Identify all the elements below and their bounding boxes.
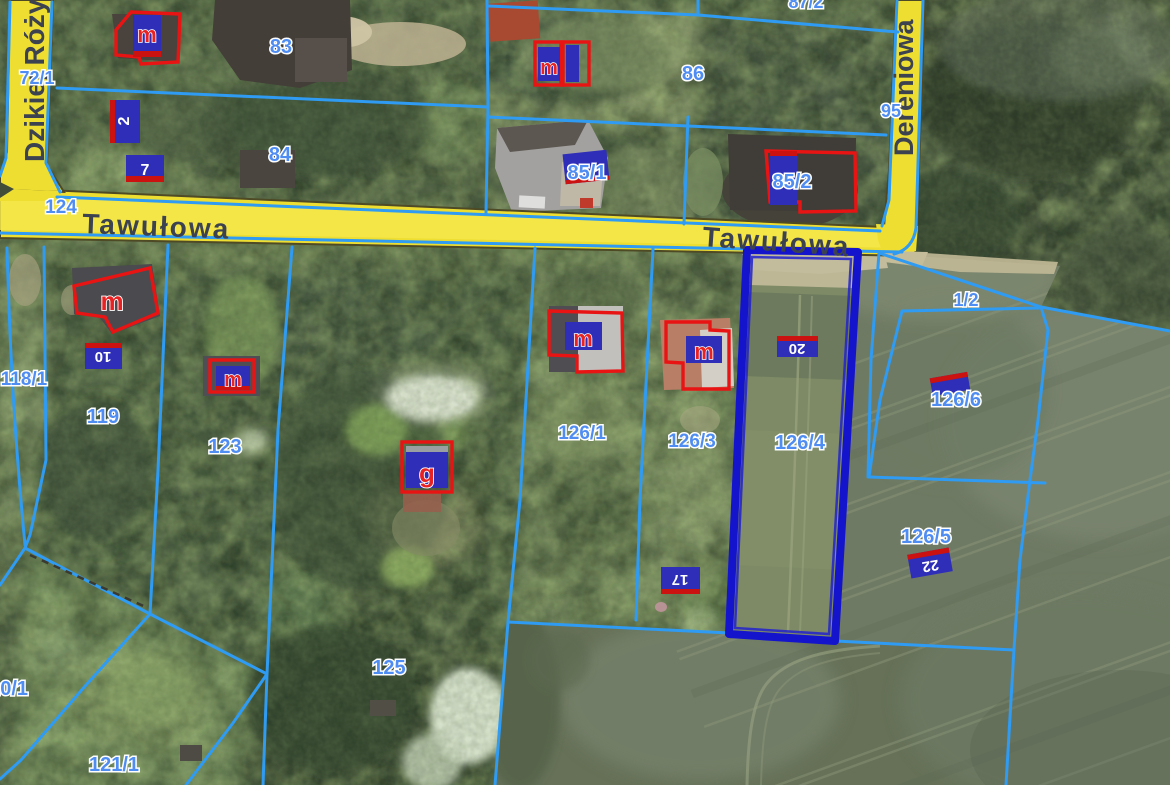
svg-text:20: 20 (789, 340, 806, 357)
svg-text:120/1: 120/1 (0, 678, 28, 700)
svg-text:Dereniowa: Dereniowa (889, 18, 919, 156)
svg-text:1/2: 1/2 (953, 290, 978, 310)
svg-text:17: 17 (672, 571, 689, 588)
svg-text:125: 125 (372, 657, 405, 679)
svg-text:119: 119 (87, 406, 119, 428)
svg-text:m: m (573, 326, 593, 351)
svg-text:g: g (419, 458, 435, 488)
svg-text:22: 22 (921, 556, 940, 576)
svg-text:126/1: 126/1 (558, 423, 606, 444)
svg-text:2: 2 (116, 116, 133, 125)
svg-text:87/2: 87/2 (788, 0, 823, 12)
svg-text:126/4: 126/4 (775, 432, 826, 454)
svg-text:m: m (137, 22, 157, 47)
svg-text:118/1: 118/1 (1, 369, 48, 390)
svg-text:7: 7 (141, 162, 150, 179)
svg-text:m: m (540, 57, 558, 79)
svg-text:m: m (224, 369, 242, 391)
svg-text:121/1: 121/1 (89, 754, 139, 776)
svg-text:124: 124 (45, 197, 77, 218)
svg-text:85/2: 85/2 (773, 171, 812, 193)
svg-text:126/6: 126/6 (931, 389, 981, 411)
svg-text:10: 10 (95, 348, 112, 365)
svg-text:126/3: 126/3 (668, 431, 716, 452)
svg-text:84: 84 (269, 144, 292, 166)
svg-text:m: m (100, 286, 123, 316)
svg-text:126/5: 126/5 (901, 526, 951, 548)
svg-text:86: 86 (682, 63, 704, 85)
svg-text:72/1: 72/1 (19, 68, 54, 88)
svg-text:85/1: 85/1 (568, 162, 607, 184)
svg-text:m: m (694, 339, 714, 364)
svg-text:83: 83 (270, 36, 292, 58)
svg-text:Tawułowa: Tawułowa (82, 208, 230, 245)
svg-text:95: 95 (881, 101, 901, 121)
svg-text:123: 123 (208, 436, 241, 458)
